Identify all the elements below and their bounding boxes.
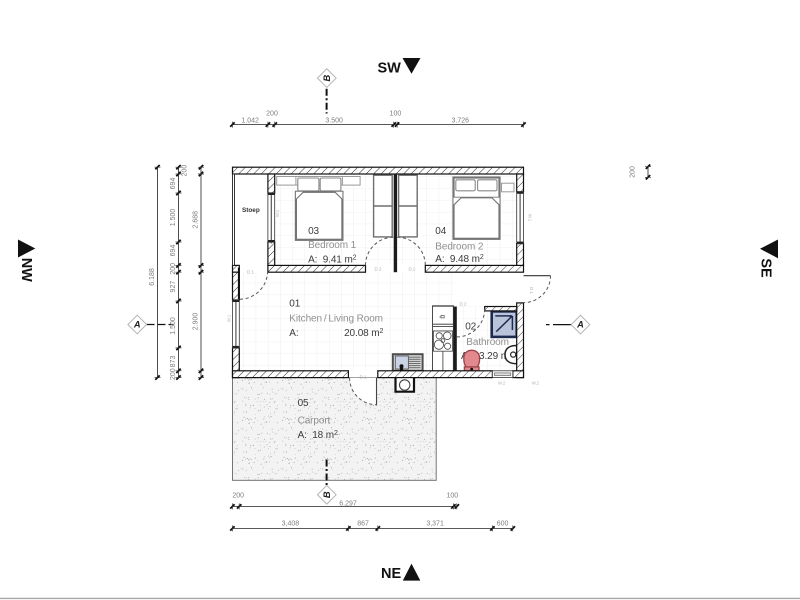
svg-text:D.1: D.1 — [529, 287, 534, 295]
svg-text:B: B — [322, 491, 332, 498]
svg-text:200: 200 — [170, 368, 177, 380]
svg-text:2.900: 2.900 — [192, 313, 199, 331]
svg-text:3,371: 3,371 — [426, 521, 444, 528]
svg-text:3.500: 3.500 — [325, 118, 343, 125]
svg-text:694: 694 — [170, 245, 177, 257]
svg-text:W.1: W.1 — [226, 314, 231, 322]
svg-text:873: 873 — [170, 356, 177, 368]
svg-text:A: 18 m2: A: 18 m2 — [298, 430, 338, 441]
svg-text:600: 600 — [497, 521, 509, 528]
svg-text:04: 04 — [435, 226, 446, 237]
svg-text:1.500: 1.500 — [170, 317, 177, 335]
svg-text:927: 927 — [170, 281, 177, 293]
svg-text:Kitchen / Living Room: Kitchen / Living Room — [289, 313, 383, 324]
svg-text:D.1: D.1 — [247, 270, 255, 275]
svg-text:1.500: 1.500 — [170, 209, 177, 227]
svg-text:694: 694 — [170, 178, 177, 190]
svg-text:W.1: W.1 — [528, 214, 533, 222]
svg-text:01: 01 — [289, 298, 300, 309]
svg-text:W.1: W.1 — [275, 209, 280, 217]
svg-text:D.1: D.1 — [360, 374, 368, 379]
svg-text:200: 200 — [170, 263, 177, 275]
svg-text:W.2: W.2 — [498, 381, 506, 386]
svg-text:05: 05 — [298, 398, 309, 409]
svg-text:A: A — [576, 320, 584, 330]
svg-text:W.2: W.2 — [532, 381, 540, 386]
svg-text:100: 100 — [447, 493, 459, 500]
svg-text:Bedroom 2: Bedroom 2 — [435, 241, 484, 252]
svg-text:200: 200 — [630, 166, 637, 178]
svg-text:6.188: 6.188 — [149, 268, 156, 286]
svg-text:A: A — [133, 320, 141, 330]
svg-text:NE: NE — [381, 566, 401, 582]
svg-text:A:: A: — [289, 328, 298, 339]
svg-text:20.08 m2: 20.08 m2 — [344, 328, 383, 339]
svg-text:Stoep: Stoep — [242, 207, 260, 214]
svg-text:200: 200 — [266, 110, 278, 117]
svg-text:SE: SE — [758, 258, 774, 278]
svg-text:Bathroom: Bathroom — [466, 337, 509, 348]
svg-text:NW: NW — [18, 258, 34, 282]
svg-text:Carport: Carport — [298, 416, 331, 427]
svg-text:Bedroom 1: Bedroom 1 — [308, 240, 357, 251]
svg-text:1.042: 1.042 — [241, 118, 259, 125]
svg-text:3,408: 3,408 — [282, 521, 300, 528]
svg-text:SW: SW — [378, 60, 402, 76]
svg-text:867: 867 — [357, 521, 369, 528]
svg-text:A: 9.41 m2: A: 9.41 m2 — [308, 255, 357, 266]
svg-text:D.2: D.2 — [375, 266, 383, 271]
svg-text:3.726: 3.726 — [452, 118, 470, 125]
svg-text:2.688: 2.688 — [192, 211, 199, 229]
svg-text:200: 200 — [181, 165, 188, 177]
svg-text:6.297: 6.297 — [339, 500, 357, 507]
svg-text:D.2: D.2 — [409, 266, 417, 271]
svg-text:D.2: D.2 — [460, 301, 468, 306]
svg-text:B: B — [322, 74, 332, 81]
svg-text:200: 200 — [232, 493, 244, 500]
svg-text:03: 03 — [308, 226, 319, 237]
svg-text:100: 100 — [390, 110, 402, 117]
svg-text:A: 9.48 m2: A: 9.48 m2 — [435, 254, 484, 265]
